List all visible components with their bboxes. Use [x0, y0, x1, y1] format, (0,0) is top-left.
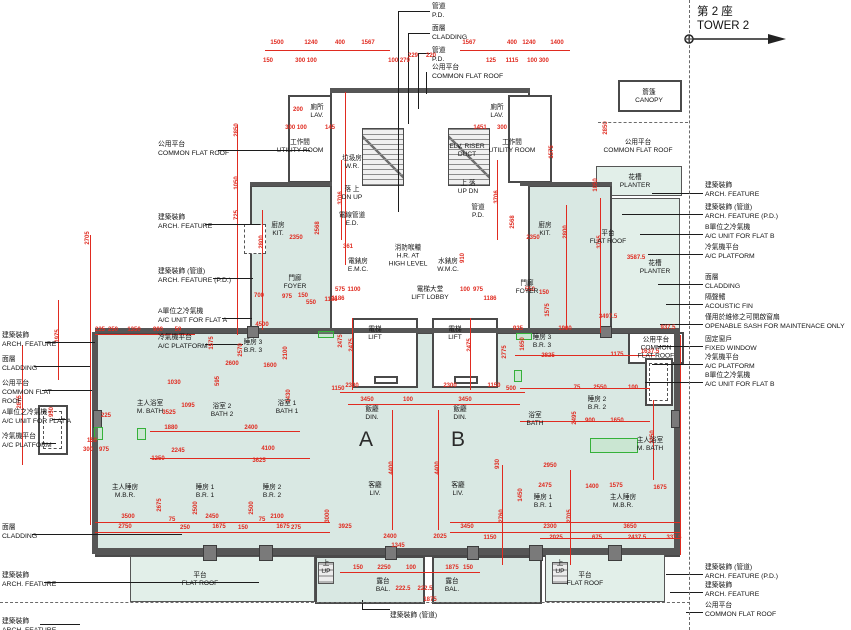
dimension-text: 1186 [324, 297, 337, 303]
dimension-text: 2450 [205, 514, 218, 520]
dimension-text: 1240 [522, 40, 535, 46]
dimension-text: 3706 [494, 190, 500, 203]
room-label: 浴室 1BATH 1 [276, 400, 299, 416]
annotation-label: 管道P.D. [432, 3, 446, 21]
dimension-text: 1567 [361, 40, 374, 46]
dimension-text: 2825 [541, 353, 554, 359]
annotation-label: 隔聲鰭ACOUSTIC FIN [705, 294, 753, 312]
dimension-line [348, 404, 520, 405]
dimension-line [450, 532, 680, 533]
annotation-label: 面層CLADDING [2, 524, 37, 542]
dimension-line [340, 392, 525, 393]
dimension-line [340, 572, 480, 573]
dimension-line [345, 92, 346, 265]
dimension-line [450, 522, 680, 523]
dimension-text: 1880 [164, 425, 177, 431]
dimension-text: 4400 [389, 461, 395, 474]
dimension-text: 225 [101, 413, 111, 419]
dimension-text: 1150 [487, 383, 500, 389]
dimension-text: 1675 [276, 524, 289, 530]
leader-line [205, 224, 260, 225]
dimension-line [150, 458, 310, 459]
dimension-text: 2775 [502, 345, 508, 358]
canopy-dashed-line [598, 122, 688, 123]
annotation-label: B單位之冷氣機A/C UNIT FOR FLAT B [705, 372, 775, 390]
wall-segment [330, 88, 530, 93]
dimension-line [265, 50, 390, 51]
annotation-label: 建築裝飾 (管道) [390, 612, 437, 621]
leader-line [652, 364, 703, 365]
dimension-text: 1150 [331, 386, 344, 392]
dimension-text: 975 [282, 294, 292, 300]
dimension-text: 50 [175, 327, 182, 333]
dimension-text: 150 [263, 58, 273, 64]
annotation-label: 建築裝飾ARCH. FEATURE [2, 332, 56, 350]
dimension-text: 300 [497, 125, 507, 131]
dimension-text: 2475 [467, 338, 473, 351]
annotation-label: 建築裝飾ARCH. FEATURE [2, 572, 56, 590]
room-label: 露台BAL. [445, 578, 459, 594]
room-label: 垃圾房W.R. [342, 155, 362, 171]
dimension-text: 700 [254, 293, 264, 299]
room-label: 平台FLAT ROOF [567, 572, 603, 588]
openable-window-marker [590, 438, 638, 453]
room-label: 主人浴室M. BATH [637, 437, 663, 453]
annotation-label: 建築裝飾ARCH. FEATURE [2, 618, 56, 630]
dimension-text: 1875 [445, 565, 458, 571]
dimension-text: 550 [306, 300, 316, 306]
dimension-text: 2437.5 [628, 535, 646, 541]
room-label: 工作間UTILITY ROOM [277, 139, 324, 155]
dimension-text: 2250 [377, 565, 390, 571]
annotation-label: 建築裝飾ARCH. FEATURE [705, 582, 759, 600]
dimension-line [262, 210, 263, 330]
annotation-label: 冷氣機平台A/C PLATFORM [158, 334, 208, 352]
wall-segment [250, 182, 332, 186]
leader-line [34, 366, 90, 367]
dimension-text: 100 279 [388, 58, 410, 64]
dimension-text: 400 [507, 40, 517, 46]
dimension-text: 3450 [360, 397, 373, 403]
annotation-label: 面層CLADDING [432, 25, 467, 43]
dimension-text: 3525 [162, 410, 175, 416]
dimension-text: 3497.5 [599, 314, 617, 320]
dimension-text: 150 [353, 565, 363, 571]
room-label: 電梯LIFT [368, 326, 382, 342]
dimension-text: 2100 [270, 514, 283, 520]
dimension-text: 337.5 [666, 535, 681, 541]
dimension-text: 150 [539, 290, 549, 296]
dimension-text: 1900 [558, 326, 571, 332]
column [467, 546, 479, 560]
room-label: 主人睡房M.B.R. [112, 484, 138, 500]
dimension-text: 2025 [549, 535, 562, 541]
dimension-text: 200 [293, 107, 303, 113]
openable-window-marker [318, 331, 334, 338]
leader-line [670, 592, 703, 593]
dimension-text: 2950 [543, 463, 556, 469]
dimension-text: 975 [473, 287, 483, 293]
dimension-line [90, 235, 91, 525]
dimension-text: 2495 [572, 411, 578, 424]
dimension-text: 100 [403, 397, 413, 403]
dimension-text: 150 [87, 438, 97, 444]
dimension-text: 150 [463, 565, 473, 571]
room-label: 睡房 2B.R. 2 [263, 484, 282, 500]
dimension-text: 2475 [349, 338, 355, 351]
annotation-label: 管道P.D. [432, 47, 446, 65]
leader-line [622, 214, 703, 215]
dimension-text: 3500 [121, 514, 134, 520]
dimension-text: 1400 [585, 484, 598, 490]
dimension-text: 975 [99, 447, 109, 453]
dimension-text: 2850 [603, 121, 609, 134]
leader-line [426, 72, 427, 94]
leader-line [44, 582, 259, 583]
dimension-text: 1350 [127, 327, 140, 333]
room-label: 落 上DN UP [342, 186, 363, 202]
leader-line [658, 284, 703, 285]
room-label: 電線管道E.D. [339, 212, 365, 228]
dimension-line [460, 50, 570, 51]
leader-line [408, 34, 409, 124]
room-label: ELV. RISERDUCT [449, 143, 484, 159]
dimension-text: 2500 [249, 501, 255, 514]
flat-roof-bottom-left [130, 556, 315, 602]
dimension-text: 1450 [518, 488, 524, 501]
dimension-text: 675 [592, 535, 602, 541]
dimension-text: 2800 [563, 225, 569, 238]
dimension-text: 2300 [345, 383, 358, 389]
dimension-text: 1650 [610, 418, 623, 424]
room-label: 上UP [321, 560, 330, 576]
tower-pointer-arrow [680, 30, 790, 48]
room-label: 飯廳DIN. [365, 406, 378, 422]
room-label: 上UP [555, 560, 564, 576]
dimension-text: 361 [343, 244, 353, 250]
annotation-label: 冷氣機平台A/C PLATFORM [705, 244, 755, 262]
dimension-text: 575 [335, 287, 345, 293]
dimension-text: 2850 [234, 123, 240, 136]
dimension-text: 3450 [460, 524, 473, 530]
room-label: 客廳LIV. [368, 482, 381, 498]
dimension-text: 1575 [549, 145, 555, 158]
dimension-text: 225 [95, 327, 105, 333]
unit-letter: B [451, 428, 465, 452]
lift-counterweight-left [374, 376, 398, 384]
column [600, 326, 612, 338]
room-label: 睡房 2B.R. 2 [588, 396, 607, 412]
floorplan-drawing: 150012404001567229220156740012401400100 … [0, 0, 851, 630]
dimension-text: 1675 [212, 524, 225, 530]
room-label: 廁所LAV. [310, 104, 323, 120]
room-label: 平台FLAT ROOF [182, 572, 218, 588]
room-label: 主人浴室M. BATH [137, 400, 163, 416]
dimension-text: 1150 [483, 535, 496, 541]
site-boundary-dashed-vertical [689, 0, 690, 630]
column [529, 545, 543, 561]
room-label: 睡房 1B.R. 1 [534, 494, 553, 510]
leader-line [652, 193, 703, 194]
dimension-text: 2600 [225, 361, 238, 367]
dimension-text: 930 [495, 459, 501, 469]
lift-counterweight-right [454, 376, 478, 384]
annotation-label: 面層CLADDING [2, 356, 37, 374]
annotation-label: 建築裝飾 (管道)ARCH. FEATURE (P.D.) [158, 268, 231, 286]
dimension-text: 725 [234, 210, 240, 220]
room-label: 主人睡房M.B.R. [610, 494, 636, 510]
dimension-text: 910 [460, 253, 466, 263]
room-label: 電錶房E.M.C. [348, 258, 368, 274]
dimension-text: 2705 [85, 231, 91, 244]
leader-line [648, 254, 703, 255]
dimension-text: 2568 [315, 221, 321, 234]
dimension-text: 75 [574, 385, 581, 391]
dimension-text: 100 [406, 565, 416, 571]
dimension-text: 2025 [433, 534, 446, 540]
dimension-line [600, 198, 601, 333]
dimension-text: 3000 [325, 509, 331, 522]
leader-line [408, 33, 430, 34]
dimension-text: 4400 [435, 461, 441, 474]
dimension-text: 1100 [347, 287, 360, 293]
dimension-text: 925 [513, 326, 523, 332]
annotation-label: 固定窗戶FIXED WINDOW [705, 336, 757, 354]
room-label: 花槽PLANTER [620, 174, 650, 190]
room-label: 睡房 3B.R. 3 [244, 339, 263, 355]
dimension-line [566, 205, 567, 330]
annotation-label: 公用平台COMMON FLATROOF [2, 380, 52, 406]
openable-window-marker [514, 370, 522, 382]
annotation-label: 公用平台COMMON FLAT ROOF [705, 602, 776, 620]
dimension-line [470, 318, 471, 390]
wall-segment [95, 328, 680, 333]
room-label: 廁所LAV. [490, 104, 503, 120]
dimension-text: 595 [215, 376, 221, 386]
dimension-text: 937.5 [660, 325, 675, 331]
dimension-line [680, 335, 681, 555]
dimension-text: 4500 [255, 322, 268, 328]
room-label: 電梯大堂LIFT LOBBY [411, 286, 448, 302]
room-label: 工作間UTILITY ROOM [489, 139, 536, 155]
dimension-text: 2760 [499, 509, 505, 522]
room-label: 廚房KIT. [538, 222, 551, 238]
annotation-label: 冷氣機平台A/C PLATFORM [705, 354, 755, 372]
room-label: 睡房 1B.R. 1 [196, 484, 215, 500]
dimension-text: 222.5 [395, 586, 410, 592]
dimension-text: 4100 [261, 446, 274, 452]
leader-line [32, 534, 182, 535]
dimension-text: 1451 [473, 125, 486, 131]
leader-line [666, 574, 703, 575]
dimension-text: 1186 [483, 296, 496, 302]
room-label: 上 落UP DN [458, 180, 478, 196]
annotation-label: 僅用於維修之可開啟窗扇OPENABLE SASH FOR MAINTENACE … [705, 314, 845, 332]
dimension-line [237, 125, 238, 335]
dimension-text: 100 [460, 287, 470, 293]
dimension-text: 1175 [610, 352, 623, 358]
room-label: 門廊FOYER [516, 280, 539, 296]
dimension-line [515, 355, 655, 356]
dimension-text: 2400 [244, 425, 257, 431]
dimension-text: 2475 [538, 483, 551, 489]
leader-line [398, 12, 399, 212]
dimension-text: 3625 [252, 458, 265, 464]
dimension-text: 500 [506, 386, 516, 392]
dimension-text: 1345 [391, 543, 404, 549]
leader-line [640, 234, 703, 235]
room-label: 客廳LIV. [451, 482, 464, 498]
dimension-text: 1030 [167, 380, 180, 386]
dimension-line [95, 522, 330, 523]
leader-line [666, 304, 703, 305]
room-label: 浴室BATH [526, 412, 543, 428]
column [259, 545, 273, 561]
annotation-label: 公用平台COMMON FLAT ROOF [432, 64, 503, 82]
room-label: 公用平台COMMONFLAT ROOF [638, 336, 674, 359]
dimension-text: 1115 [506, 58, 519, 64]
dimension-text: 100 [628, 385, 638, 391]
annotation-label: 建築裝飾 (管道)ARCH. FEATURE (P.D.) [705, 204, 778, 222]
dimension-text: 2675 [157, 498, 163, 511]
leader-line [398, 11, 430, 12]
annotation-label: A單位之冷氣機A/C UNIT FOR FLAT A [158, 308, 227, 326]
dimension-text: 900 [153, 327, 163, 333]
dimension-text: 1240 [304, 40, 317, 46]
column [608, 545, 622, 561]
room-label: 電梯LIFT [448, 326, 462, 342]
dimension-text: 75 [169, 517, 176, 523]
room-label: 露台BAL. [376, 578, 390, 594]
column [203, 545, 217, 561]
dimension-text: 1600 [263, 363, 276, 369]
dimension-text: 250 [108, 327, 118, 333]
dimension-text: 1575 [609, 483, 622, 489]
dimension-text: 145 [325, 125, 335, 131]
column [671, 410, 680, 428]
annotation-label: 面層CLADDING [705, 274, 740, 292]
dimension-text: 75 [259, 517, 266, 523]
dimension-line [150, 431, 300, 432]
room-label: 消防喉轆H.R. ATHIGH LEVEL [389, 244, 428, 267]
dimension-text: 1050 [234, 176, 240, 189]
dimension-text: 2800 [259, 235, 265, 248]
room-label: 睡房 3B.R. 3 [533, 334, 552, 350]
dimension-text: 1500 [270, 40, 283, 46]
dimension-text: 1650 [520, 337, 526, 350]
dimension-text: 400 [335, 40, 345, 46]
floorplan-canvas: 150012404001567229220156740012401400100 … [0, 0, 851, 630]
annotation-label: B單位之冷氣機A/C UNIT FOR FLAT B [705, 224, 775, 242]
room-label: 廚房KIT. [271, 222, 284, 238]
room-label: 水錶房W.M.C. [437, 258, 459, 274]
dimension-text: 1575 [545, 303, 551, 316]
dimension-text: 2750 [118, 524, 131, 530]
room-label: 公用平台COMMON FLAT ROOF [604, 139, 673, 155]
dimension-text: 3650 [623, 524, 636, 530]
leader-line [418, 54, 419, 109]
dimension-text: 2245 [171, 448, 184, 454]
dimension-text: 100 300 [527, 58, 549, 64]
dimension-text: 2475 [338, 334, 344, 347]
dimension-text: 150 [238, 525, 248, 531]
dimension-line [95, 532, 330, 533]
dimension-text: 2500 [193, 501, 199, 514]
dimension-text: 300 100 [295, 58, 317, 64]
room-label: 管道P.D. [471, 204, 484, 220]
annotation-label: 建築裝飾 (管道)ARCH. FEATURE (P.D.) [705, 564, 778, 582]
dimension-text: 3925 [338, 524, 351, 530]
dimension-text: 1675 [653, 485, 666, 491]
dimension-text: 1250 [151, 456, 164, 462]
annotation-label: A單位之冷氣機A/C UNIT FOR FLAT A [2, 409, 71, 427]
dimension-text: 2550 [593, 385, 606, 391]
leader-line [362, 609, 390, 610]
annotation-label: 冷氣機平台A/C PLATFORM [2, 433, 52, 451]
dimension-text: 250 [180, 525, 190, 531]
dimension-text: 300 100 [285, 125, 307, 131]
dimension-text: 1095 [181, 403, 194, 409]
dimension-text: 275 [291, 525, 301, 531]
annotation-label: 公用平台COMMON FLAT ROOF [158, 141, 229, 159]
annotation-label: 建築裝飾ARCH. FEATURE [705, 182, 759, 200]
openable-window-marker [137, 428, 146, 440]
dimension-text: 1575 [209, 336, 215, 349]
dimension-text: 2100 [283, 346, 289, 359]
room-label: 飯廳DIN. [453, 406, 466, 422]
dimension-text: 2705 [567, 509, 573, 522]
unit-letter: A [359, 428, 373, 452]
room-label: 門廊FOYER [284, 275, 307, 291]
dimension-text: 1400 [550, 40, 563, 46]
dimension-text: 3450 [458, 397, 471, 403]
dimension-line [352, 318, 353, 390]
dimension-text: 2300 [543, 524, 556, 530]
room-label: 簷篷CANOPY [635, 89, 663, 105]
dimension-text: 300 [83, 447, 93, 453]
dimension-text: 900 [585, 418, 595, 424]
dimension-text: 1050 [593, 178, 599, 191]
dimension-text: 2350 [289, 235, 302, 241]
dimension-text: 2568 [510, 215, 516, 228]
annotation-label: 建築裝飾ARCH. FEATURE [158, 214, 212, 232]
room-label: 花槽PLANTER [640, 260, 670, 276]
dimension-text: 2300 [443, 383, 456, 389]
dimension-text: 222.5 [417, 586, 432, 592]
dimension-text: 2400 [383, 534, 396, 540]
room-label: 浴室 2BATH 2 [211, 403, 234, 419]
leader-line [645, 382, 703, 383]
dimension-text: 150 [298, 293, 308, 299]
site-boundary-dashed-horizontal [0, 602, 690, 603]
room-label: 平台FLAT ROOF [590, 230, 626, 246]
tower-title-zh: 第 2 座 [697, 5, 749, 19]
